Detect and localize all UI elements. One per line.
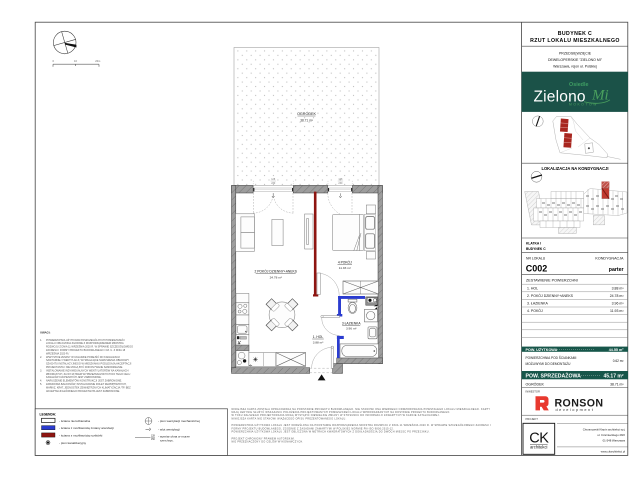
svg-text:128: 128 [271,178,276,181]
svg-text:44.55 m²: 44.55 m² [609,348,625,352]
svg-text:development: development [556,407,595,412]
svg-text:38.71 m²: 38.71 m² [610,382,624,386]
svg-text:38.71 m²: 38.71 m² [300,118,313,122]
svg-text:NIE PRZEZNACZONY DO CELÓW WYKO: NIE PRZEZNACZONY DO CELÓW WYKONAWCZYCH. [232,441,304,444]
svg-text:01-548 Warszawa: 01-548 Warszawa [603,438,626,442]
svg-text:4 POKÓJ: 4 POKÓJ [338,259,352,264]
svg-text:KONDYGNACJA: KONDYGNACJA [595,257,624,261]
svg-text:3.96 m²: 3.96 m² [346,327,357,331]
svg-text:LEGENDA:: LEGENDA: [40,413,57,417]
svg-text:POW. UŻYTKOWA: POW. UŻYTKOWA [526,347,558,352]
svg-text:230: 230 [271,182,276,185]
svg-text:www.ckarchitekci.pl: www.ckarchitekci.pl [601,449,626,453]
svg-text:LOKALIZACJA NA KONDYGNACJI: LOKALIZACJA NA KONDYGNACJI [541,166,608,171]
svg-text:1. HOL: 1. HOL [313,335,324,339]
svg-text:128: 128 [338,178,343,181]
svg-text:5.: 5. [40,383,42,386]
svg-text:230: 230 [338,182,343,185]
svg-text:24.78 m²: 24.78 m² [610,294,625,298]
svg-text:KLATKA I: KLATKA I [526,242,541,246]
svg-text:PROJEKT: PROJEKT [526,417,539,421]
svg-text:ul. Czarnieckiego 28/2: ul. Czarnieckiego 28/2 [597,433,625,437]
svg-text:- ściana z możliwością zmiany: - ściana z możliwością zmiany aranżacji [59,426,114,430]
svg-text:UWAGI:: UWAGI: [40,331,50,335]
svg-text:1.: 1. [40,339,42,342]
svg-text:Mi: Mi [591,88,609,104]
svg-text:- ściana nierozbieralna: - ściana nierozbieralna [59,419,90,423]
svg-text:3.88 m²: 3.88 m² [313,340,324,344]
svg-text:2.: 2. [40,356,42,359]
svg-text:C002: C002 [526,264,548,274]
svg-text:POWIERZCHNIA UŻYTKOWA LOKALU J: POWIERZCHNIA UŻYTKOWA LOKALU JEST OBLICZ… [232,431,430,434]
svg-text:architekci: architekci [530,445,547,450]
svg-text:MOKOTÓW: MOKOTÓW [569,101,598,106]
svg-text:- ściana z możliwością rozbiór: - ściana z możliwością rozbiórki [59,434,103,438]
svg-text:24.78 m²: 24.78 m² [270,276,282,280]
svg-text:3. ŁAZIENKA: 3. ŁAZIENKA [527,302,548,306]
svg-text:- pion kanalizacyjny: - pion kanalizacyjny [59,441,86,445]
svg-text:2 POKÓJ DZIENNY+ANEKS: 2 POKÓJ DZIENNY+ANEKS [254,269,297,274]
svg-text:- wlot wentylacji: - wlot wentylacji [158,427,180,431]
svg-text:Chrzanowski Klepin architekci: Chrzanowski Klepin architekci sp.j [583,428,626,432]
svg-text:11.93 m²: 11.93 m² [339,266,351,270]
svg-text:2. POKÓJ DZIENNY+ANEKS: 2. POKÓJ DZIENNY+ANEKS [527,293,574,298]
svg-text:1. HOL: 1. HOL [527,286,538,290]
svg-text:POWIERZCHNIA POD ŚCIANKAMI: POWIERZCHNIA POD ŚCIANKAMI [526,355,577,360]
svg-text:szer./wys.: szer./wys. [160,438,174,442]
svg-text:3 ŁAZIENKA: 3 ŁAZIENKA [342,321,361,325]
svg-text:Osiedle: Osiedle [569,82,588,88]
svg-text:POW. SPRZEDAŻOWA: POW. SPRZEDAŻOWA [526,372,582,379]
svg-text:OGRÓDEK: OGRÓDEK [526,381,545,386]
svg-text:20m: 20m [95,59,100,63]
svg-text:4. POKÓJ: 4. POKÓJ [527,308,543,313]
svg-text:PRZEDSIĘWZIĘCIE: PRZEDSIĘWZIĘCIE [559,52,592,56]
svg-text:- pion wentylacji mechanicznej: - pion wentylacji mechanicznej [158,419,200,423]
svg-text:Warszawa, rejon ul. Polskiej: Warszawa, rejon ul. Polskiej [553,64,597,68]
svg-text:0.62 m²: 0.62 m² [613,359,624,363]
svg-text:BUDYNEK C: BUDYNEK C [558,31,592,37]
svg-text:3.88 m²: 3.88 m² [612,286,625,290]
svg-text:INWESTOR: INWESTOR [526,389,540,393]
svg-text:DEWELOPERSKIE "ZIELONO MI": DEWELOPERSKIE "ZIELONO MI" [548,58,603,62]
svg-text:RZUT LOKALU MIESZKALNEGO: RZUT LOKALU MIESZKALNEGO [530,38,620,44]
svg-text:11.93 m²: 11.93 m² [610,309,624,313]
svg-text:AKCEPTACJI/GŁÓWNEGO PROJEKTANT: AKCEPTACJI/GŁÓWNEGO PROJEKTANTA JEST ZAB… [46,390,120,393]
svg-text:NINIEJSZA KARTA NIE STANOWI WI: NINIEJSZA KARTA NIE STANOWI WIĄŻĄCEGO OP… [232,417,347,420]
svg-text:ZESTAWIENIE POWIERZCHNI: ZESTAWIENIE POWIERZCHNI [526,278,578,282]
svg-text:3.: 3. [40,369,42,372]
svg-text:OGRÓDEK: OGRÓDEK [297,111,316,116]
svg-text:NR LOKALU: NR LOKALU [526,257,546,261]
svg-text:parter: parter [609,267,624,273]
svg-text:BUDYNEK C: BUDYNEK C [526,247,546,251]
svg-text:45.17 m²: 45.17 m² [603,373,623,379]
svg-text:3.96 m²: 3.96 m² [612,302,625,306]
svg-text:MOŻLIWYMI DO DEMONTAŻU: MOŻLIWYMI DO DEMONTAŻU [526,361,572,366]
